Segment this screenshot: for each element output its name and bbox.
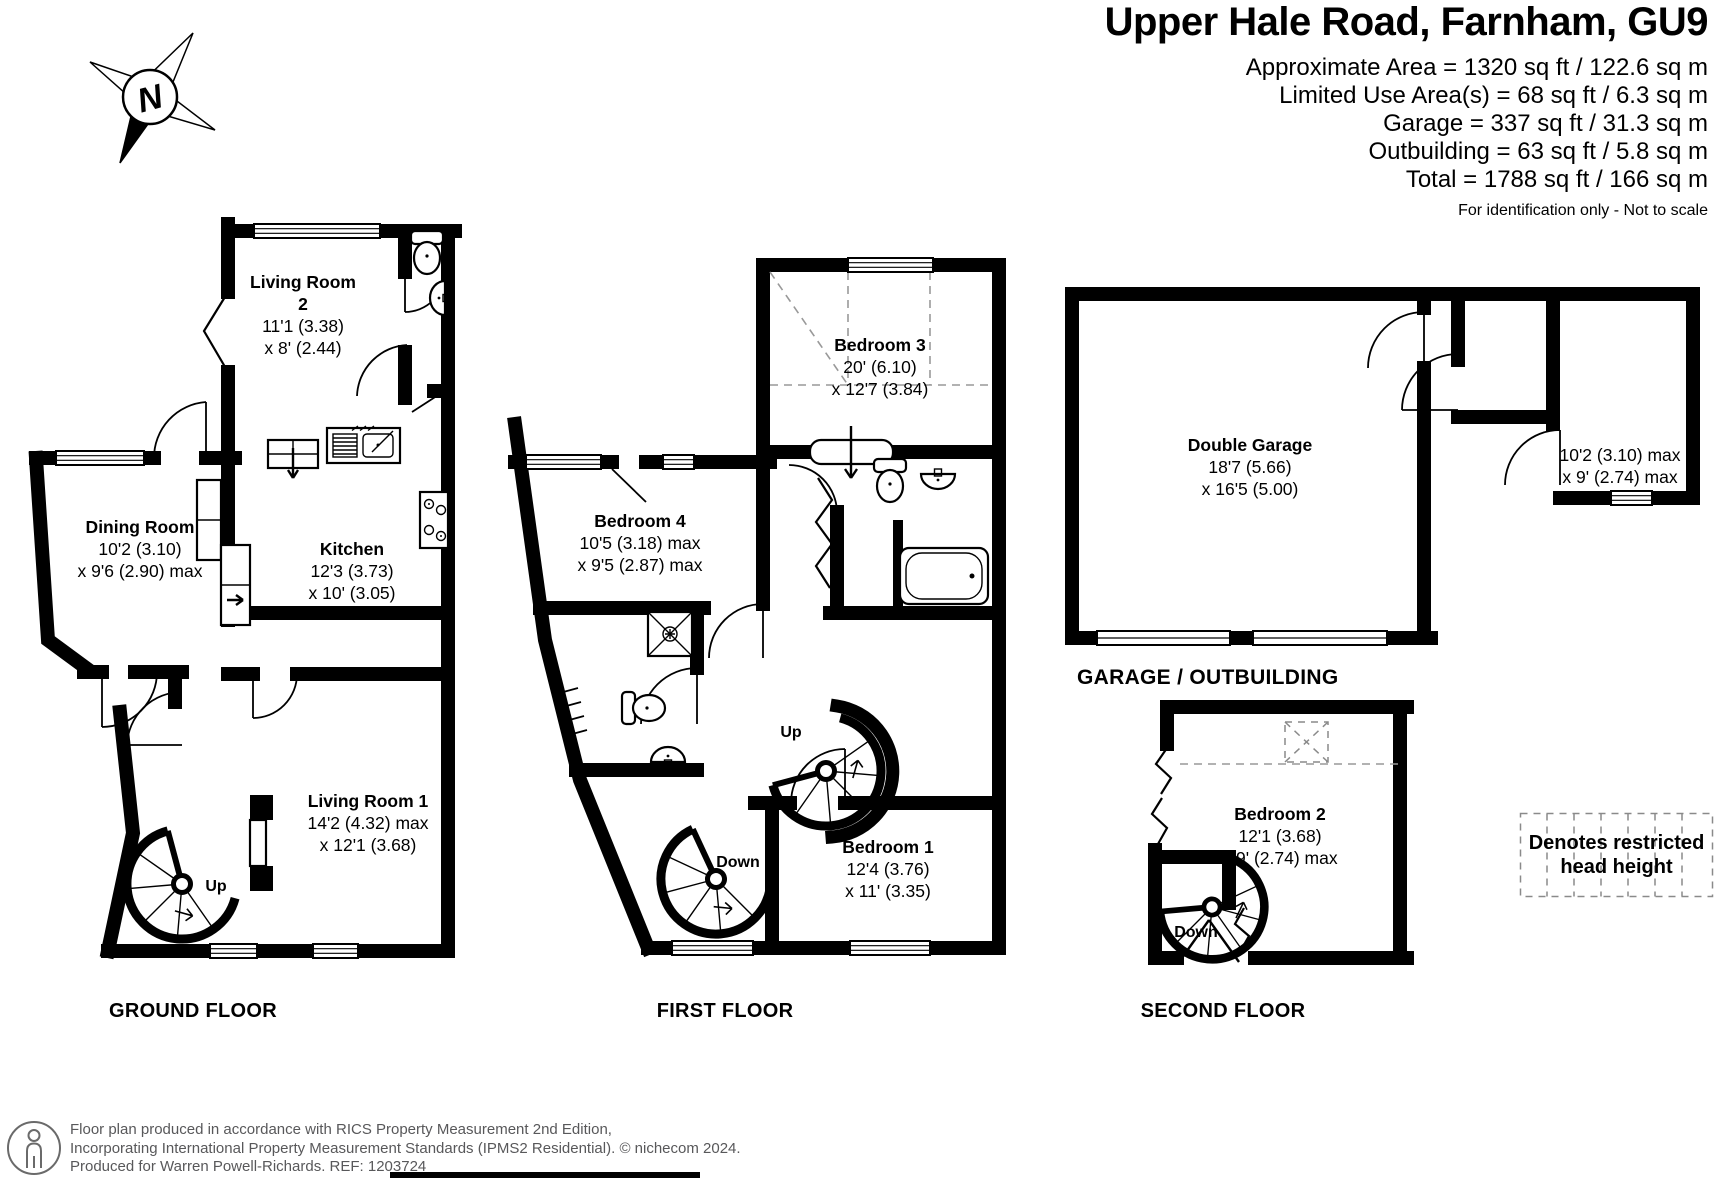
legend-line: Denotes restricted [1520,831,1713,855]
room-dim: x 12'1 (3.68) [307,834,428,856]
stair-label-up: Up [780,724,801,742]
room-dim: 12'1 (3.68) [1222,825,1337,847]
room-dim: x 16'5 (5.00) [1188,478,1312,500]
kitchen-sink-icon [327,426,400,463]
toilet-icon [411,231,443,274]
floor-label-first: FIRST FLOOR [657,1000,794,1023]
toilet-icon [622,692,665,724]
room-dim: x 9'6 (2.90) max [78,560,203,582]
legend-line: head height [1520,855,1713,879]
room-label-bedroom-4: Bedroom 4 10'5 (3.18) max x 9'5 (2.87) m… [578,510,703,576]
room-name: Bedroom 1 [842,836,933,858]
header: Upper Hale Road, Farnham, GU9 Approximat… [1105,0,1708,220]
sink-icon [921,469,955,489]
room-label-bedroom-2: Bedroom 2 12'1 (3.68) x 9' (2.74) max [1222,803,1337,869]
room-dim: x 9' (2.74) max [1559,466,1680,488]
footer-line: Floor plan produced in accordance with R… [70,1121,741,1140]
room-dim: x 10' (3.05) [309,582,396,604]
restricted-head-height-legend: Denotes restricted head height [1520,813,1713,897]
room-label-dining-room: Dining Room 10'2 (3.10) x 9'6 (2.90) max [78,516,203,582]
step-symbol [268,440,318,478]
room-dim: 12'3 (3.73) [309,560,396,582]
area-line: Limited Use Area(s) = 68 sq ft / 6.3 sq … [1105,82,1708,110]
room-label-kitchen: Kitchen 12'3 (3.73) x 10' (3.05) [309,538,396,604]
spiral-stair-down-icon [639,825,776,956]
stair-label-down: Down [1174,924,1218,942]
room-name: Bedroom 3 [832,334,929,356]
room-label-living-room-1: Living Room 1 14'2 (4.32) max x 12'1 (3.… [307,790,428,856]
disclaimer: For identification only - Not to scale [1105,202,1708,220]
room-dim: x 12'7 (3.84) [832,378,929,400]
room-dim: 10'5 (3.18) max [578,532,703,554]
page-title: Upper Hale Road, Farnham, GU9 [1105,0,1708,44]
room-dim: x 11' (3.35) [842,880,933,902]
room-name: Living Room [250,271,356,293]
room-dim: 18'7 (5.66) [1188,456,1312,478]
floor-label-ground: GROUND FLOOR [109,1000,277,1023]
room-dim: 20' (6.10) [832,356,929,378]
room-name: Bedroom 4 [578,510,703,532]
stove-icon [420,492,448,548]
room-dim: 11'1 (3.38) [250,315,356,337]
area-line: Total = 1788 sq ft / 166 sq m [1105,166,1708,194]
kitchen-counter [221,545,250,625]
room-label-store: 10'2 (3.10) max x 9' (2.74) max [1559,444,1680,488]
room-dim: x 8' (2.44) [250,337,356,359]
room-name: Double Garage [1188,434,1312,456]
floor-label-second: SECOND FLOOR [1141,1000,1306,1023]
area-line: Outbuilding = 63 sq ft / 5.8 sq m [1105,138,1708,166]
area-line: Approximate Area = 1320 sq ft / 122.6 sq… [1105,54,1708,82]
room-dim: 14'2 (4.32) max [307,812,428,834]
room-name: 2 [250,293,356,315]
garage-section-label: GARAGE / OUTBUILDING [1077,666,1339,690]
room-dim: 10'2 (3.10) max [1559,444,1680,466]
room-label-double-garage: Double Garage 18'7 (5.66) x 16'5 (5.00) [1188,434,1312,500]
room-name: Bedroom 2 [1222,803,1337,825]
chimney-breast [250,795,273,891]
footer: Floor plan produced in accordance with R… [70,1121,741,1177]
room-dim: 12'4 (3.76) [842,858,933,880]
footer-line: Incorporating International Property Mea… [70,1140,741,1159]
footer-line: Produced for Warren Powell-Richards. REF… [70,1158,741,1177]
room-dim: x 9' (2.74) max [1222,847,1337,869]
floorplan-page: N Upper Hale Road, Farnham, GU9 Approxim… [0,0,1720,1178]
room-label-bedroom-3: Bedroom 3 20' (6.10) x 12'7 (3.84) [832,334,929,400]
shower-icon [648,612,692,656]
area-line: Garage = 337 sq ft / 31.3 sq m [1105,110,1708,138]
room-name: Living Room 1 [307,790,428,812]
room-label-living-room-2: Living Room 2 11'1 (3.38) x 8' (2.44) [250,271,356,359]
room-dim: 10'2 (3.10) [78,538,203,560]
bathtub-icon [900,548,988,604]
person-icon [8,1122,60,1174]
toilet-icon [874,459,906,502]
stair-label-down: Down [716,854,760,872]
room-dim: x 9'5 (2.87) max [578,554,703,576]
room-name: Kitchen [309,538,396,560]
room-name: Dining Room [78,516,203,538]
room-label-bedroom-1: Bedroom 1 12'4 (3.76) x 11' (3.35) [842,836,933,902]
stair-label-up: Up [205,878,226,896]
